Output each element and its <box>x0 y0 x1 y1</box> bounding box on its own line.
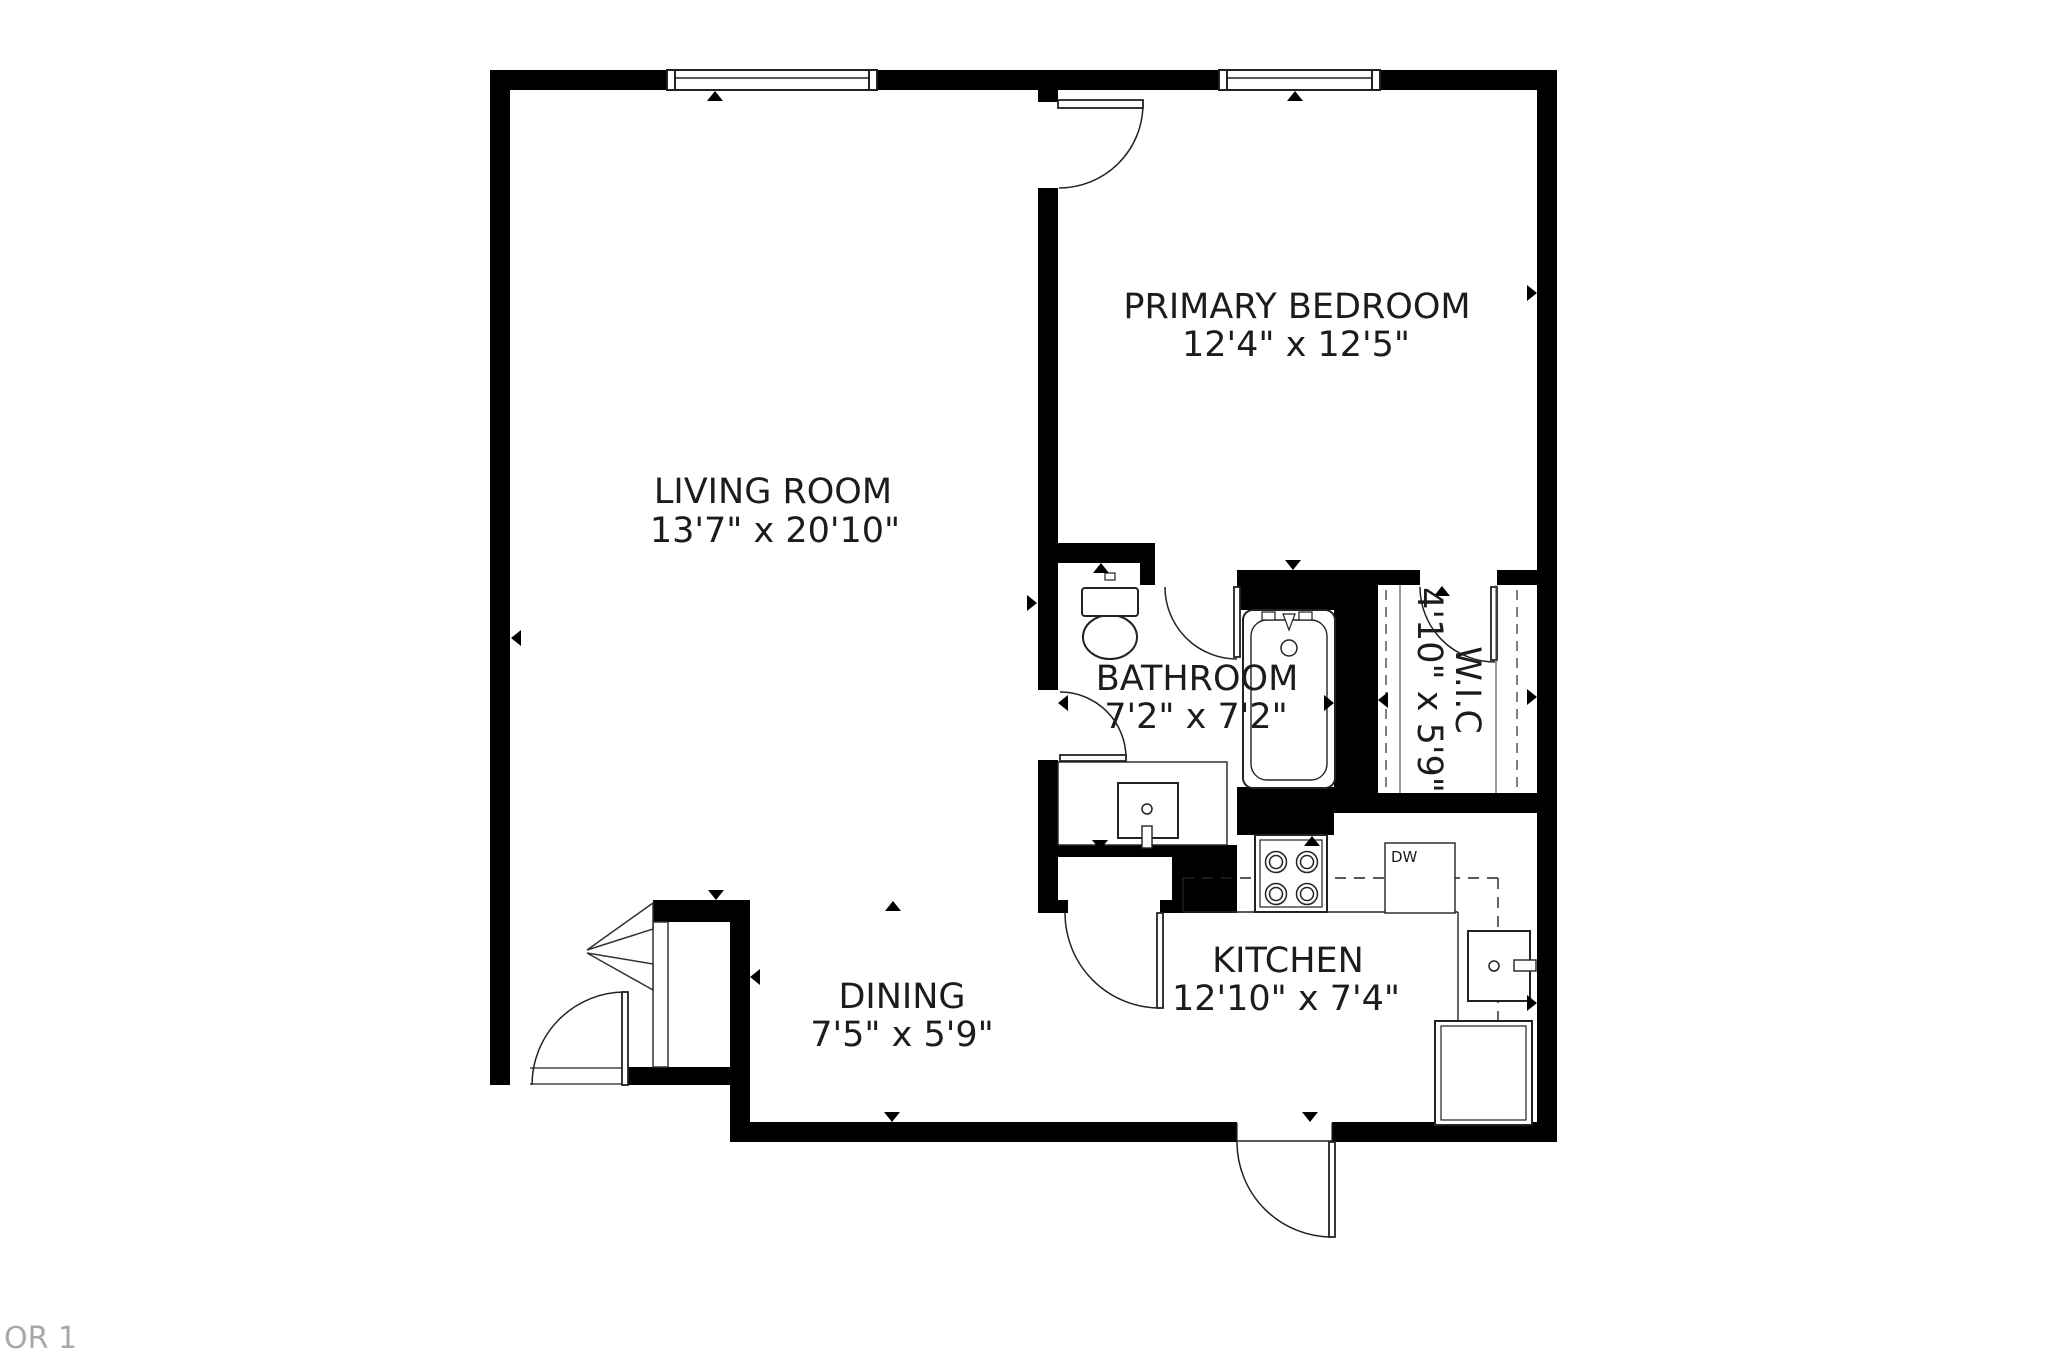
opening-entry-door <box>1237 1122 1332 1142</box>
wall-closet-right <box>730 900 750 1122</box>
dining-name: DINING <box>838 977 965 1017</box>
wall-living-bedroom-divider <box>1038 90 1058 913</box>
dining-label: DINING 7'5" x 5'9" <box>810 977 993 1055</box>
living-room-window-icon <box>667 70 877 90</box>
direction-marker-up-icon <box>707 91 723 101</box>
floorplan-drawing: DW LIVING ROOM 13'7" x 20'10" PRIMARY BE… <box>0 0 2048 1365</box>
stove-icon <box>1255 835 1327 912</box>
kitchen-door-icon <box>1065 913 1163 1008</box>
bedroom-window-icon <box>1219 70 1380 90</box>
kitchen-name: KITCHEN <box>1212 941 1364 981</box>
wall-bedroom-wic-b <box>1497 570 1537 585</box>
direction-marker-right-icon <box>1527 995 1537 1011</box>
opening-bathroom-hall-door <box>1038 690 1058 760</box>
living-room-label: LIVING ROOM 13'7" x 20'10" <box>650 472 900 551</box>
direction-marker-down-icon <box>1285 560 1301 570</box>
jamb-living-door <box>510 1067 530 1085</box>
direction-marker-down-icon <box>1302 1112 1318 1122</box>
direction-marker-right-icon <box>1527 689 1537 705</box>
direction-marker-left-icon <box>1058 695 1068 711</box>
wall-chase <box>1058 857 1172 900</box>
wall-bottom-main <box>730 1122 1557 1142</box>
closet-door-slab <box>653 922 668 1067</box>
wall-wic-bottom <box>1334 793 1557 813</box>
vanity-sink-icon <box>1058 762 1227 848</box>
opening-bedroom-door <box>1038 102 1058 188</box>
bathroom-label: BATHROOM 7'2" x 7'2" <box>1096 659 1299 737</box>
wall-top <box>490 70 1557 90</box>
direction-marker-right-icon <box>1027 595 1037 611</box>
primary-bedroom-name: PRIMARY BEDROOM <box>1123 287 1470 327</box>
dishwasher-label: DW <box>1391 848 1418 866</box>
living-room-name: LIVING ROOM <box>654 472 892 512</box>
direction-marker-left-icon <box>1378 692 1388 708</box>
closet-bifold-panel-2 <box>587 953 653 990</box>
primary-bedroom-dims: 12'4" x 12'5" <box>1182 325 1410 365</box>
wall-bedroom-bath-step <box>1140 543 1155 585</box>
wall-bath-bottom-right <box>1237 787 1334 835</box>
living-room-dims: 13'7" x 20'10" <box>650 511 900 551</box>
wall-bath-wic-divider <box>1334 585 1378 813</box>
primary-bedroom-label: PRIMARY BEDROOM 12'4" x 12'5" <box>1123 287 1470 365</box>
kitchen-dims: 12'10" x 7'4" <box>1172 979 1400 1019</box>
bathroom-dims: 7'2" x 7'2" <box>1104 697 1287 737</box>
direction-marker-up-icon <box>885 901 901 911</box>
toilet-icon <box>1082 573 1138 659</box>
wall-bedroom-bath-b <box>1237 570 1334 610</box>
wall-right <box>1537 70 1557 1142</box>
direction-marker-up-icon <box>1093 563 1109 573</box>
kitchen-label: KITCHEN 12'10" x 7'4" <box>1172 941 1400 1019</box>
bathroom-name: BATHROOM <box>1096 659 1299 699</box>
bathroom-bedroom-door-icon <box>1165 587 1240 659</box>
direction-marker-left-icon <box>511 630 521 646</box>
fridge-icon <box>1435 1021 1532 1125</box>
bedroom-door-icon <box>1058 100 1143 188</box>
dishwasher-icon: DW <box>1385 843 1455 913</box>
floor-footer-label: OR 1 <box>4 1321 77 1356</box>
wic-name: W.I.C <box>1447 646 1487 734</box>
floorplan-page: DW LIVING ROOM 13'7" x 20'10" PRIMARY BE… <box>0 0 2048 1365</box>
wall-left <box>490 70 510 1085</box>
direction-marker-left-icon <box>750 969 760 985</box>
wic-label: W.I.C 4'10" x 5'9" <box>1409 587 1487 793</box>
direction-marker-down-icon <box>708 890 724 900</box>
direction-marker-up-icon <box>1287 91 1303 101</box>
dining-dims: 7'5" x 5'9" <box>810 1015 993 1055</box>
closet-bifold-panel-1 <box>587 903 653 950</box>
opening-living-door <box>530 1067 625 1085</box>
direction-marker-down-icon <box>884 1112 900 1122</box>
wic-dims: 4'10" x 5'9" <box>1409 587 1449 793</box>
direction-marker-right-icon <box>1527 285 1537 301</box>
wall-bedroom-wic-a <box>1334 570 1420 585</box>
kitchen-sink-icon <box>1468 931 1536 1001</box>
opening-kitchen-door <box>1068 900 1160 913</box>
